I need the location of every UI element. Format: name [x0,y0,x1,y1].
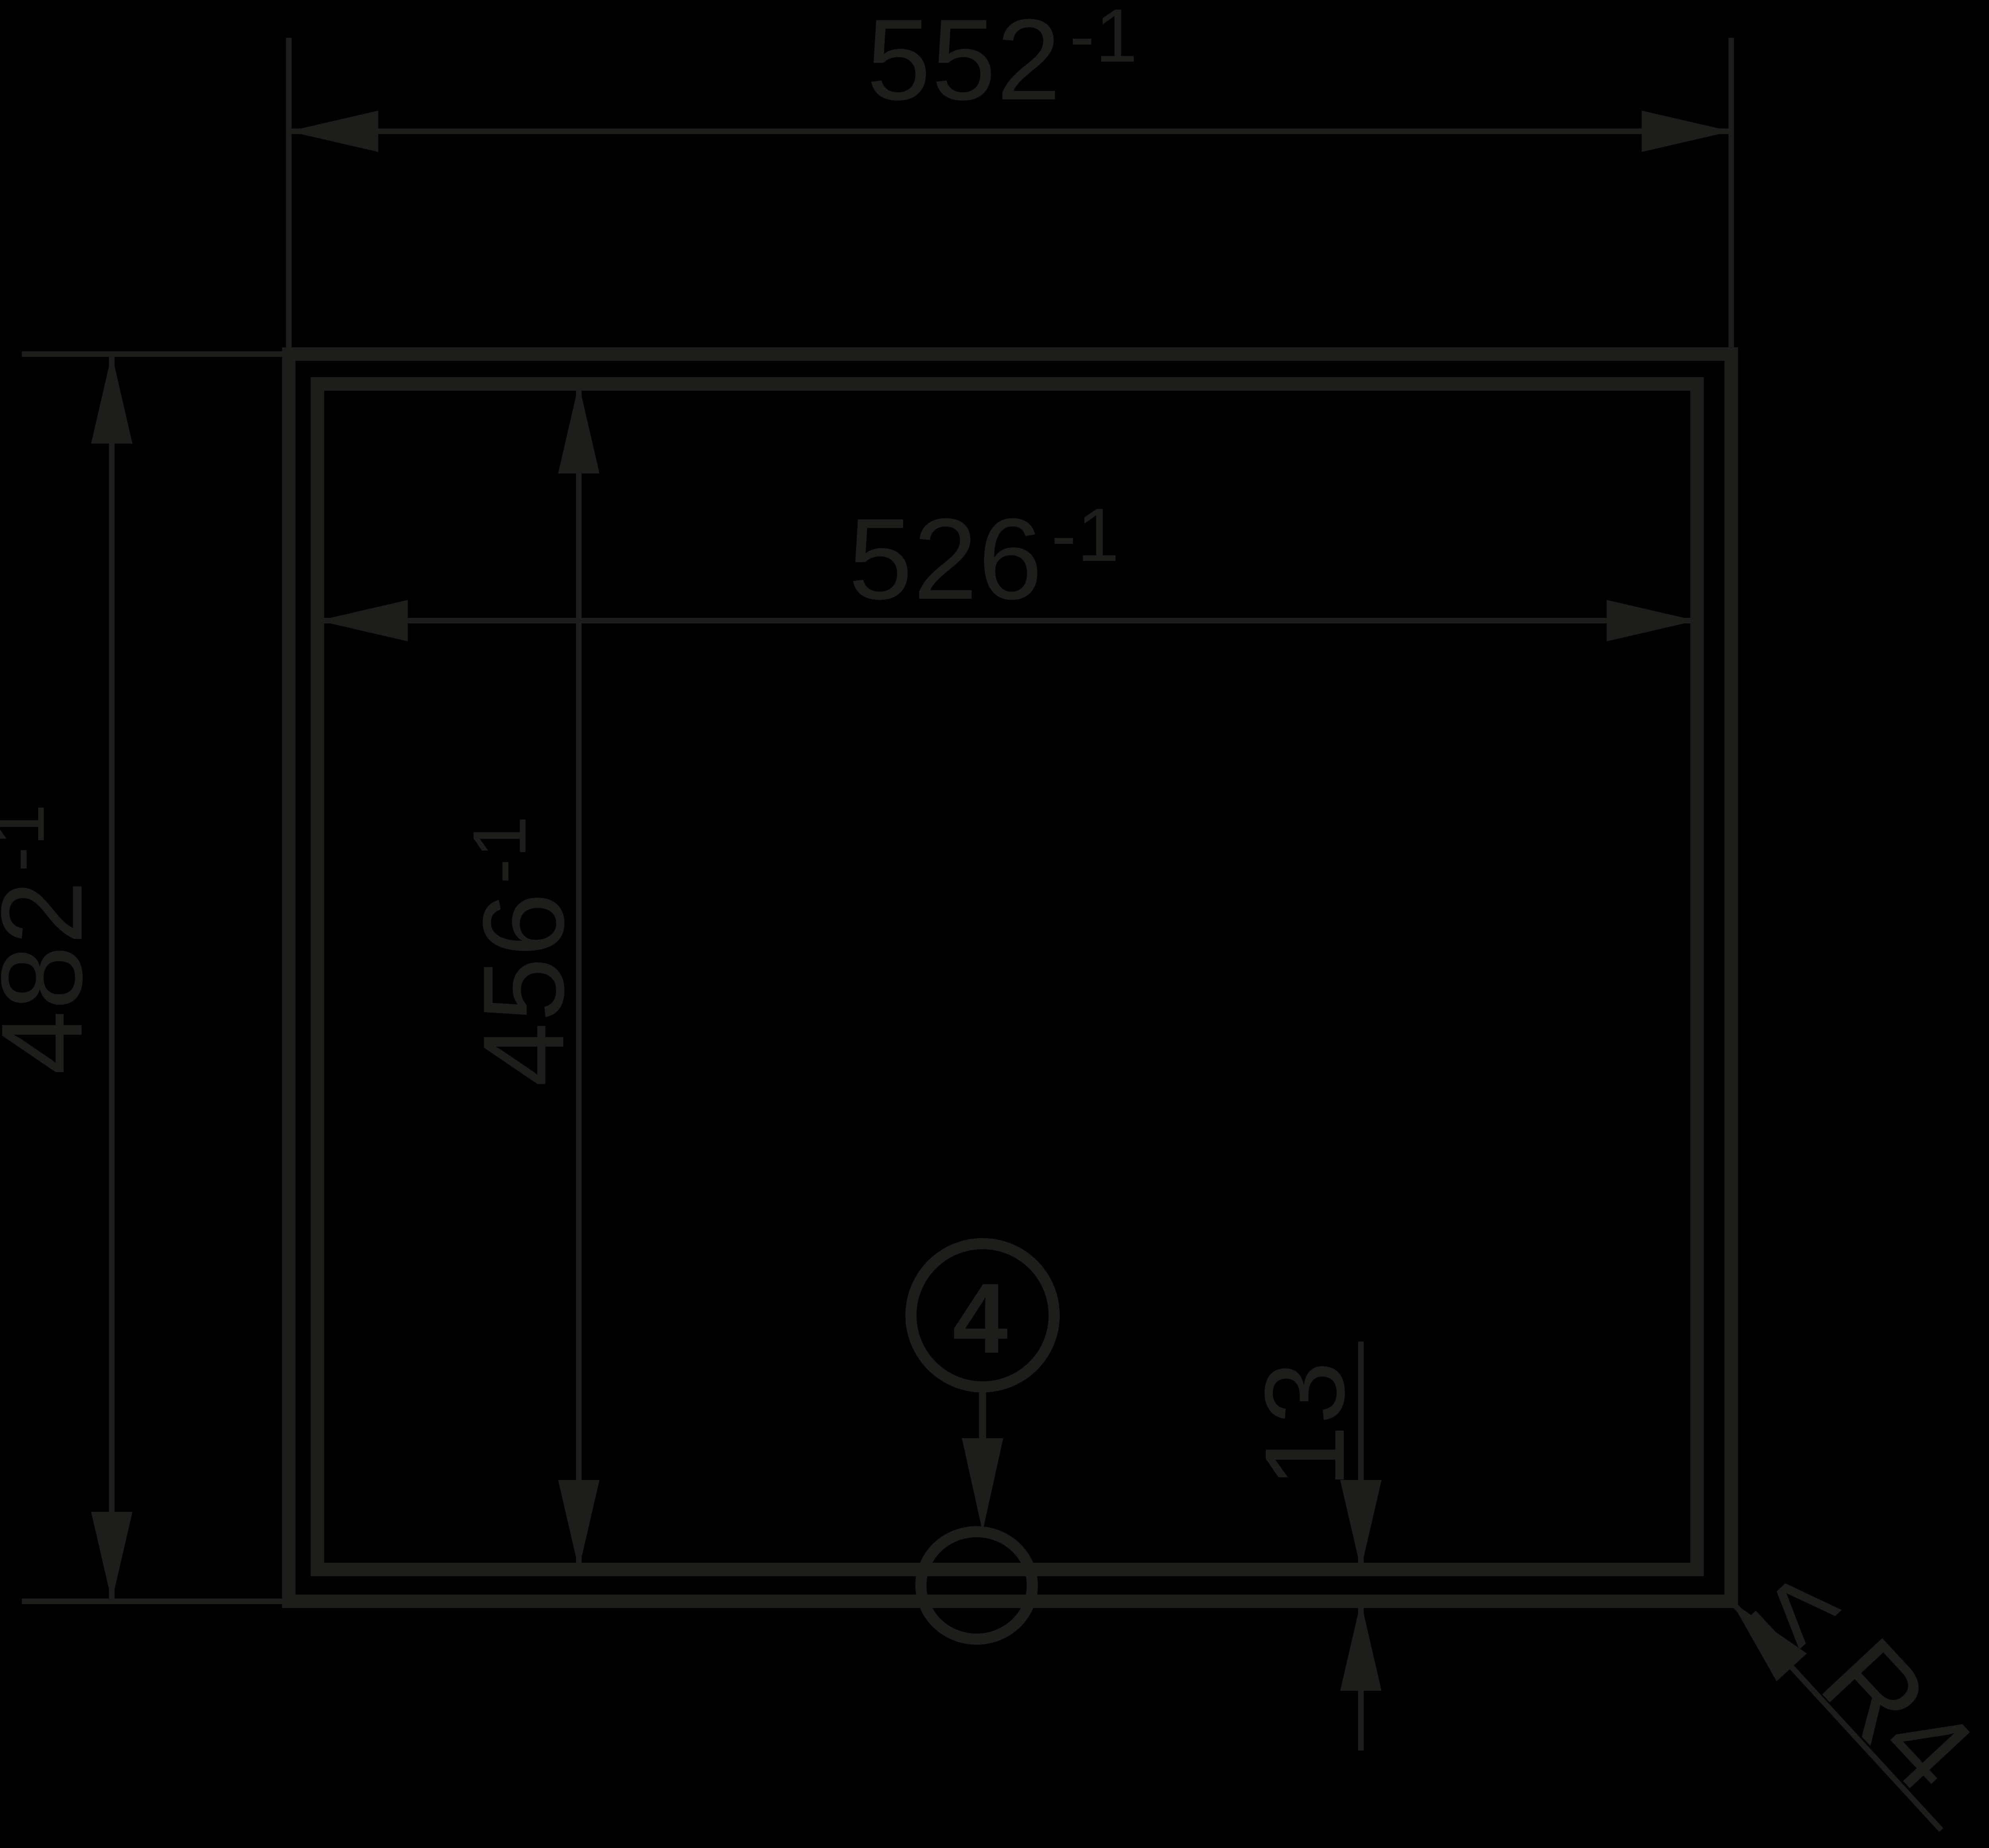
dimension-inner-height: 456-1 [457,384,599,1570]
arrowhead-left-icon [318,600,408,641]
callout-4: 4 [911,1244,1054,1639]
fixing-point-marker [921,1532,1032,1639]
technical-drawing: 552-1 526-1 482-1 456-1 13 4 [0,0,1989,1848]
corner-radius-note: ≤ R4 [1728,1540,1989,1830]
dimension-inner-width: 526-1 [317,493,1697,641]
arrowhead-down-icon [558,1480,599,1570]
dimension-label: 526-1 [849,493,1120,623]
arrowhead-left-icon [289,111,378,152]
arrowhead-right-icon [1607,600,1696,641]
dimension-label: 552-1 [867,0,1139,124]
dimension-label: 13 [1242,1360,1368,1488]
dimension-label: 482-1 [0,803,106,1075]
arrowhead-up-icon [558,384,599,473]
radius-note-label: ≤ R4 [1728,1540,1989,1817]
arrowhead-right-icon [1642,111,1731,152]
arrowhead-up-icon [91,354,132,444]
drawing-stage: 552-1 526-1 482-1 456-1 13 4 [0,0,1989,1848]
dimension-label: 456-1 [457,815,588,1087]
callout-number: 4 [952,1263,1008,1374]
arrowhead-down-icon [91,1512,132,1601]
dimension-outer-height: 482-1 [0,354,289,1601]
arrowhead-down-icon [962,1438,1003,1532]
dimension-outer-width: 552-1 [289,0,1731,354]
dimension-bottom-offset: 13 [1242,1342,1382,1751]
arrowhead-down-icon [1340,1480,1382,1570]
arrowhead-up-icon [1340,1601,1382,1691]
